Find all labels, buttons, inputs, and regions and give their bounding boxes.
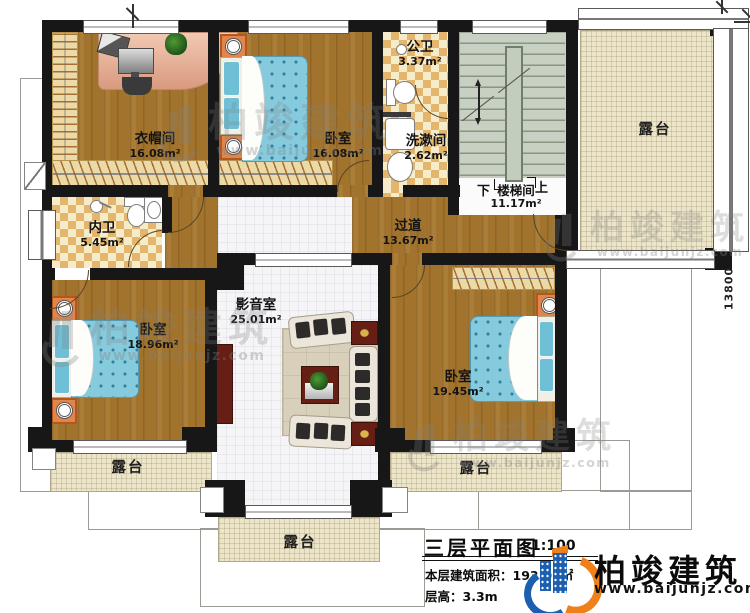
wall-bedroom-left-right xyxy=(205,268,217,452)
room-label-cloakroom: 衣帽间16.08m² xyxy=(110,132,200,160)
stair-arrow-down-icon xyxy=(475,118,481,125)
pillow xyxy=(223,61,240,96)
sofa-top xyxy=(288,311,357,350)
window-left-bay xyxy=(28,210,56,260)
door-gap-bedroom-right xyxy=(392,253,422,265)
pillow xyxy=(539,321,554,357)
cloakroom-closet-left xyxy=(52,32,78,162)
pier-bedroom-left-corner xyxy=(182,427,217,452)
wall-bedroom-bath xyxy=(372,32,383,185)
niche-top-left xyxy=(24,162,46,190)
stair-down-label: 下 xyxy=(477,180,490,199)
washroom-door-gap xyxy=(383,185,403,197)
wall-media-top-left-block xyxy=(217,253,244,290)
room-label-bedroom-left: 卧室18.96m² xyxy=(115,323,191,351)
desk-chair xyxy=(122,77,152,95)
window-top-cloakroom xyxy=(83,20,179,34)
bedroom-top-closet xyxy=(219,160,333,188)
toilet-bowl xyxy=(393,81,416,104)
table-plant-icon xyxy=(310,372,328,390)
terrace-label-bottom-right: 露台 xyxy=(446,457,506,478)
stair-arrow-up-icon xyxy=(475,79,481,86)
room-label-bedroom-right: 卧室19.45m² xyxy=(420,370,496,398)
dim-tick-right-line xyxy=(734,21,750,23)
wall-cloak-bedroom xyxy=(208,32,219,185)
roof-outline-bottom-right xyxy=(478,490,692,530)
bedroom-right-closet xyxy=(452,267,555,290)
room-label-public-bath: 公卫3.37m² xyxy=(390,40,450,68)
corridor-tile-section xyxy=(218,197,352,253)
room-label-washroom: 洗漱间2.62m² xyxy=(390,134,462,162)
pillow xyxy=(54,324,70,359)
wall-bedroom-left-top xyxy=(90,268,217,280)
side-table xyxy=(351,321,378,345)
window-media-south xyxy=(245,505,352,519)
terrace-label-bottom-center: 露台 xyxy=(270,531,330,552)
terrace-label-top-right: 露台 xyxy=(625,118,685,139)
brand-logo-icon xyxy=(526,545,592,611)
floor-height-line: 层高：3.3m xyxy=(425,586,498,605)
roof-outline-right xyxy=(600,262,692,492)
monitor-icon xyxy=(118,48,154,74)
nightstand xyxy=(51,398,77,424)
cloakroom-closet-bottom xyxy=(52,160,210,188)
lamp-icon xyxy=(225,38,242,55)
lamp-icon xyxy=(56,402,73,419)
niche-bottom-left xyxy=(32,448,56,470)
sofa-right xyxy=(349,346,378,422)
niche-terrace-center-left xyxy=(200,487,224,513)
dimension-right: 13800 xyxy=(723,259,736,319)
wall-stair-right xyxy=(566,20,578,260)
window-top-bath xyxy=(400,20,438,34)
room-label-bedroom-top: 卧室16.08m² xyxy=(300,132,376,160)
room-label-private-bath: 内卫5.45m² xyxy=(62,221,142,249)
niche-terrace-center-right xyxy=(382,487,408,513)
sofa-bottom xyxy=(288,414,354,449)
tv-cabinet xyxy=(216,344,233,424)
room-label-corridor: 过道13.67m² xyxy=(372,219,444,247)
terrace-rail-bottom xyxy=(566,250,715,269)
door-gap-cloakroom xyxy=(168,185,203,197)
stair-direction-line xyxy=(478,86,480,118)
terrace-top-right xyxy=(580,30,715,252)
side-table xyxy=(351,422,378,446)
stair-stringer xyxy=(505,46,523,182)
window-bedroom-right-south xyxy=(430,440,542,454)
stair-up-label: 上 xyxy=(535,177,548,196)
pillow xyxy=(223,97,240,130)
pillow xyxy=(54,361,70,394)
window-top-stair xyxy=(472,20,547,34)
terrace-rail-right xyxy=(713,28,749,252)
terrace-label-bottom-left: 露台 xyxy=(98,456,158,477)
brand-url: www.baijunjz.com xyxy=(594,581,750,597)
sink-basin xyxy=(147,201,161,219)
lamp-icon xyxy=(225,138,242,155)
window-media-north xyxy=(255,253,352,267)
wall-bath-separator xyxy=(383,112,411,117)
window-bedroom-left-south xyxy=(73,440,187,454)
window-top-bedroom xyxy=(248,20,349,34)
terrace-rail-top xyxy=(578,8,749,30)
room-label-media-room: 影音室25.01m² xyxy=(222,298,290,326)
pillow xyxy=(539,358,554,392)
floor-plan-canvas: 衣帽间16.08m² 卧室16.08m² 公卫3.37m² 洗漱间2.62m² … xyxy=(0,0,750,613)
pier-bedroom-right-east xyxy=(553,428,575,452)
bed-blanket xyxy=(508,316,537,400)
pier-bedroom-right-west xyxy=(375,428,405,452)
desk-plant-icon xyxy=(165,33,187,55)
